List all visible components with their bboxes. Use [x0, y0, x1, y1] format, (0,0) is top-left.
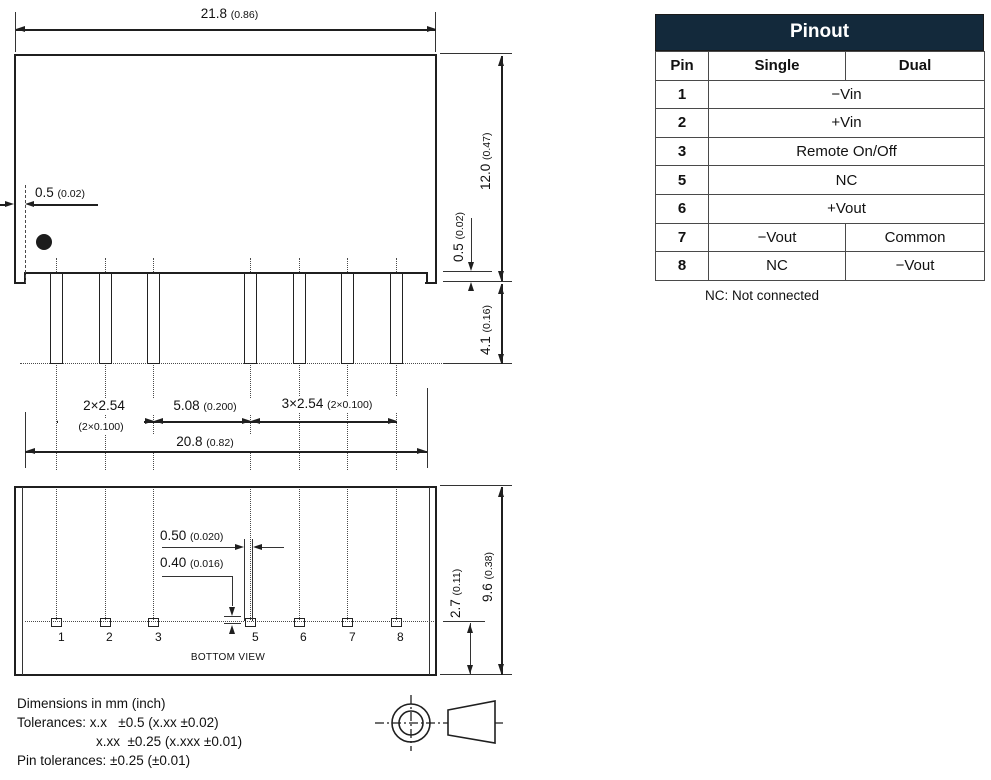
pin-function-cell-dual: −Vout [846, 252, 985, 281]
dim-mm: 21.8 [201, 6, 227, 21]
dim-label-body-depth: 9.6 (0.38) [481, 550, 496, 604]
arrowhead [145, 418, 154, 424]
bottom-view-label: BOTTOM VIEW [158, 652, 298, 663]
dim-mm: 5.08 [173, 398, 199, 413]
pin-lead [341, 273, 354, 364]
arrowhead [5, 201, 14, 207]
dim-mm: 4.1 [478, 336, 493, 355]
pin-function-cell-single: −Vout [709, 223, 846, 252]
table-row: 3 Remote On/Off [656, 137, 985, 166]
table-row: 1 −Vin [656, 80, 985, 109]
pin-lead [99, 273, 112, 364]
pinout-table-grid: Pin Single Dual 1 −Vin 2 +Vin 3 Remote O… [655, 51, 985, 281]
extension-line [25, 412, 26, 468]
dim-label-pin-row-offset: 2.7 (0.11) [449, 567, 464, 620]
extension-line [443, 281, 512, 282]
body-outline-top [14, 54, 437, 56]
pin-function-cell: −Vin [709, 80, 985, 109]
pin-detail-edge [252, 539, 253, 621]
pin-lead [293, 273, 306, 364]
pin-number-cell: 1 [656, 80, 709, 109]
pin-pad [391, 618, 402, 627]
arrowhead [26, 448, 35, 454]
dim-label-pitch-mid: 5.08 (0.200) [151, 398, 259, 414]
projection-symbol-icon [360, 688, 510, 758]
extension-line [15, 12, 16, 52]
pin-function-cell-single: NC [709, 252, 846, 281]
arrowhead [498, 354, 504, 363]
pin1-marker-dot [36, 234, 52, 250]
dim-inch: (2×0.100) [327, 399, 372, 411]
nc-note: NC: Not connected [705, 288, 984, 303]
arrowhead [468, 282, 474, 291]
pin-number: 8 [397, 630, 404, 644]
dim-inch: (0.02) [58, 188, 85, 200]
pin-lead [390, 273, 403, 364]
centerline [56, 489, 57, 620]
body-outline-left [14, 54, 16, 284]
pin-number-cell: 8 [656, 252, 709, 281]
col-header-pin: Pin [656, 52, 709, 81]
edge-inset-line [25, 185, 26, 283]
dimension-line [25, 451, 427, 453]
tolerance-note-1: Tolerances: x.x ±0.5 (x.xx ±0.02) [17, 715, 219, 730]
pin-thickness-edge [224, 616, 241, 617]
pin-lead [147, 273, 160, 364]
pin-pad [148, 618, 159, 627]
table-row: 7 −Vout Common [656, 223, 985, 252]
dimension-line [501, 284, 503, 364]
table-row: 2 +Vin [656, 109, 985, 138]
arrowhead [16, 26, 25, 32]
arrowhead [154, 418, 163, 424]
dimension-line [16, 29, 436, 31]
pin-lead [244, 273, 257, 364]
dimension-line [162, 547, 235, 548]
bottom-view-inner-edge [22, 487, 23, 675]
arrowhead [242, 418, 251, 424]
pin-number: 6 [300, 630, 307, 644]
dim-mm: 0.40 [160, 555, 186, 570]
arrowhead [498, 271, 504, 280]
dimension-line [262, 547, 284, 548]
arrowhead [467, 665, 473, 674]
arrowhead [467, 624, 473, 633]
pin-pad [100, 618, 111, 627]
pin-lead [50, 273, 63, 364]
dim-inch: (0.02) [454, 212, 466, 239]
bottom-view-inner-edge [429, 487, 430, 675]
dim-mm: 20.8 [176, 434, 202, 449]
dim-label-standoff: 0.5 (0.02) [452, 210, 467, 264]
dim-inch: (0.86) [231, 9, 258, 21]
leader-line [471, 218, 472, 262]
extension-line [443, 621, 485, 622]
centerline [299, 489, 300, 620]
dim-inch: (2×0.100) [78, 421, 123, 433]
dim-mm: 12.0 [478, 164, 493, 190]
arrowhead [229, 607, 235, 616]
centerline [105, 489, 106, 620]
arrowhead [25, 201, 34, 207]
centerline [153, 489, 154, 620]
dim-label-pin-width: 0.50 (0.020) [158, 528, 225, 544]
arrowhead [229, 625, 235, 634]
dim-mm: 0.5 [451, 243, 466, 262]
dim-mm: 0.50 [160, 528, 186, 543]
pin-number-cell: 7 [656, 223, 709, 252]
body-outline-bottom [24, 272, 428, 274]
dim-label-body-width: 21.8 (0.86) [155, 6, 304, 22]
dim-label-pin-length: 4.1 (0.16) [479, 303, 494, 357]
dim-inch: (0.016) [190, 558, 223, 570]
pin-function-cell: Remote On/Off [709, 137, 985, 166]
dim-label-pin-span: 20.8 (0.82) [153, 434, 257, 450]
extension-line [435, 12, 436, 52]
tolerance-note-2: x.xx ±0.25 (x.xxx ±0.01) [96, 734, 242, 749]
pin-tip-line [20, 363, 512, 364]
dim-inch: (0.11) [451, 569, 463, 596]
col-header-dual: Dual [846, 52, 985, 81]
dim-mm: 3×2.54 [282, 396, 324, 411]
dim-label-pitch-right: 3×2.54 (2×0.100) [255, 396, 399, 412]
pin-pad [294, 618, 305, 627]
arrowhead [251, 418, 260, 424]
pin-pad [342, 618, 353, 627]
dim-label-body-height: 12.0 (0.47) [479, 131, 494, 192]
dim-inch: (0.020) [190, 531, 223, 543]
dim-label-pin-thickness: 0.40 (0.016) [158, 555, 225, 571]
centerline [347, 489, 348, 620]
units-note: Dimensions in mm (inch) [17, 696, 166, 711]
dim-inch: (0.47) [481, 133, 493, 160]
arrowhead [427, 26, 436, 32]
dim-inch: (0.200) [203, 401, 236, 413]
dim-label-pitch-left: 2×2.54 [61, 398, 147, 414]
dim-inch: (0.16) [481, 305, 493, 332]
dim-mm: 9.6 [480, 583, 495, 602]
bottom-view-outline [14, 486, 437, 676]
pin-thickness-edge [224, 623, 241, 624]
extension-line [440, 485, 512, 486]
arrowhead [498, 488, 504, 497]
arrowhead [498, 57, 504, 66]
pin-tolerance-note: Pin tolerances: ±0.25 (±0.01) [17, 753, 190, 768]
table-row: 6 +Vout [656, 194, 985, 223]
pin-number-cell: 2 [656, 109, 709, 138]
pinout-header-row: Pin Single Dual [656, 52, 985, 81]
extension-line [440, 53, 512, 54]
arrowhead [417, 448, 426, 454]
pinout-table: Pinout Pin Single Dual 1 −Vin 2 +Vin 3 R… [655, 14, 984, 303]
pin-number-cell: 6 [656, 194, 709, 223]
body-foot-right-edge [426, 272, 428, 284]
pin-number: 1 [58, 630, 65, 644]
table-row: 8 NC −Vout [656, 252, 985, 281]
pin-number: 5 [252, 630, 259, 644]
arrowhead [498, 664, 504, 673]
extension-line [443, 271, 492, 272]
pin-function-cell: +Vin [709, 109, 985, 138]
table-row: 5 NC [656, 166, 985, 195]
dimension-line [501, 487, 503, 675]
leader-line [162, 576, 233, 577]
pin-number: 7 [349, 630, 356, 644]
arrowhead [468, 262, 474, 271]
dim-mm: 2.7 [448, 599, 463, 618]
col-header-single: Single [709, 52, 846, 81]
dim-inch: (0.38) [483, 552, 495, 579]
dimension-line [501, 56, 503, 281]
dim-label-edge-inset: 0.5 (0.02) [33, 185, 87, 201]
pin-number-cell: 5 [656, 166, 709, 195]
pin-function-cell: NC [709, 166, 985, 195]
arrowhead [388, 418, 397, 424]
arrowhead [253, 544, 262, 550]
centerline [396, 489, 397, 620]
pin-row-centerline [25, 621, 434, 622]
pin-pad [51, 618, 62, 627]
extension-line [427, 388, 428, 468]
pin-number: 2 [106, 630, 113, 644]
pin-function-cell: +Vout [709, 194, 985, 223]
arrowhead [235, 544, 244, 550]
dim-inch: (0.82) [206, 437, 233, 449]
cone-symbol [448, 701, 495, 743]
pinout-table-title: Pinout [655, 14, 984, 51]
dim-mm: 2×2.54 [83, 398, 125, 413]
pin-detail-edge [244, 539, 245, 621]
dim-mm: 0.5 [35, 185, 54, 200]
pin-number: 3 [155, 630, 162, 644]
pin-pad [245, 618, 256, 627]
dimension-line [34, 204, 98, 206]
arrowhead [498, 285, 504, 294]
body-outline-right [435, 54, 437, 284]
pin-number-cell: 3 [656, 137, 709, 166]
leader-line [232, 576, 233, 606]
pin-function-cell-dual: Common [846, 223, 985, 252]
package-drawing-page: 21.8 (0.86) 0.5 (0.02) 12.0 (0.47) [0, 0, 991, 780]
dim-label-pitch-left-inch: (2×0.100) [58, 418, 144, 434]
